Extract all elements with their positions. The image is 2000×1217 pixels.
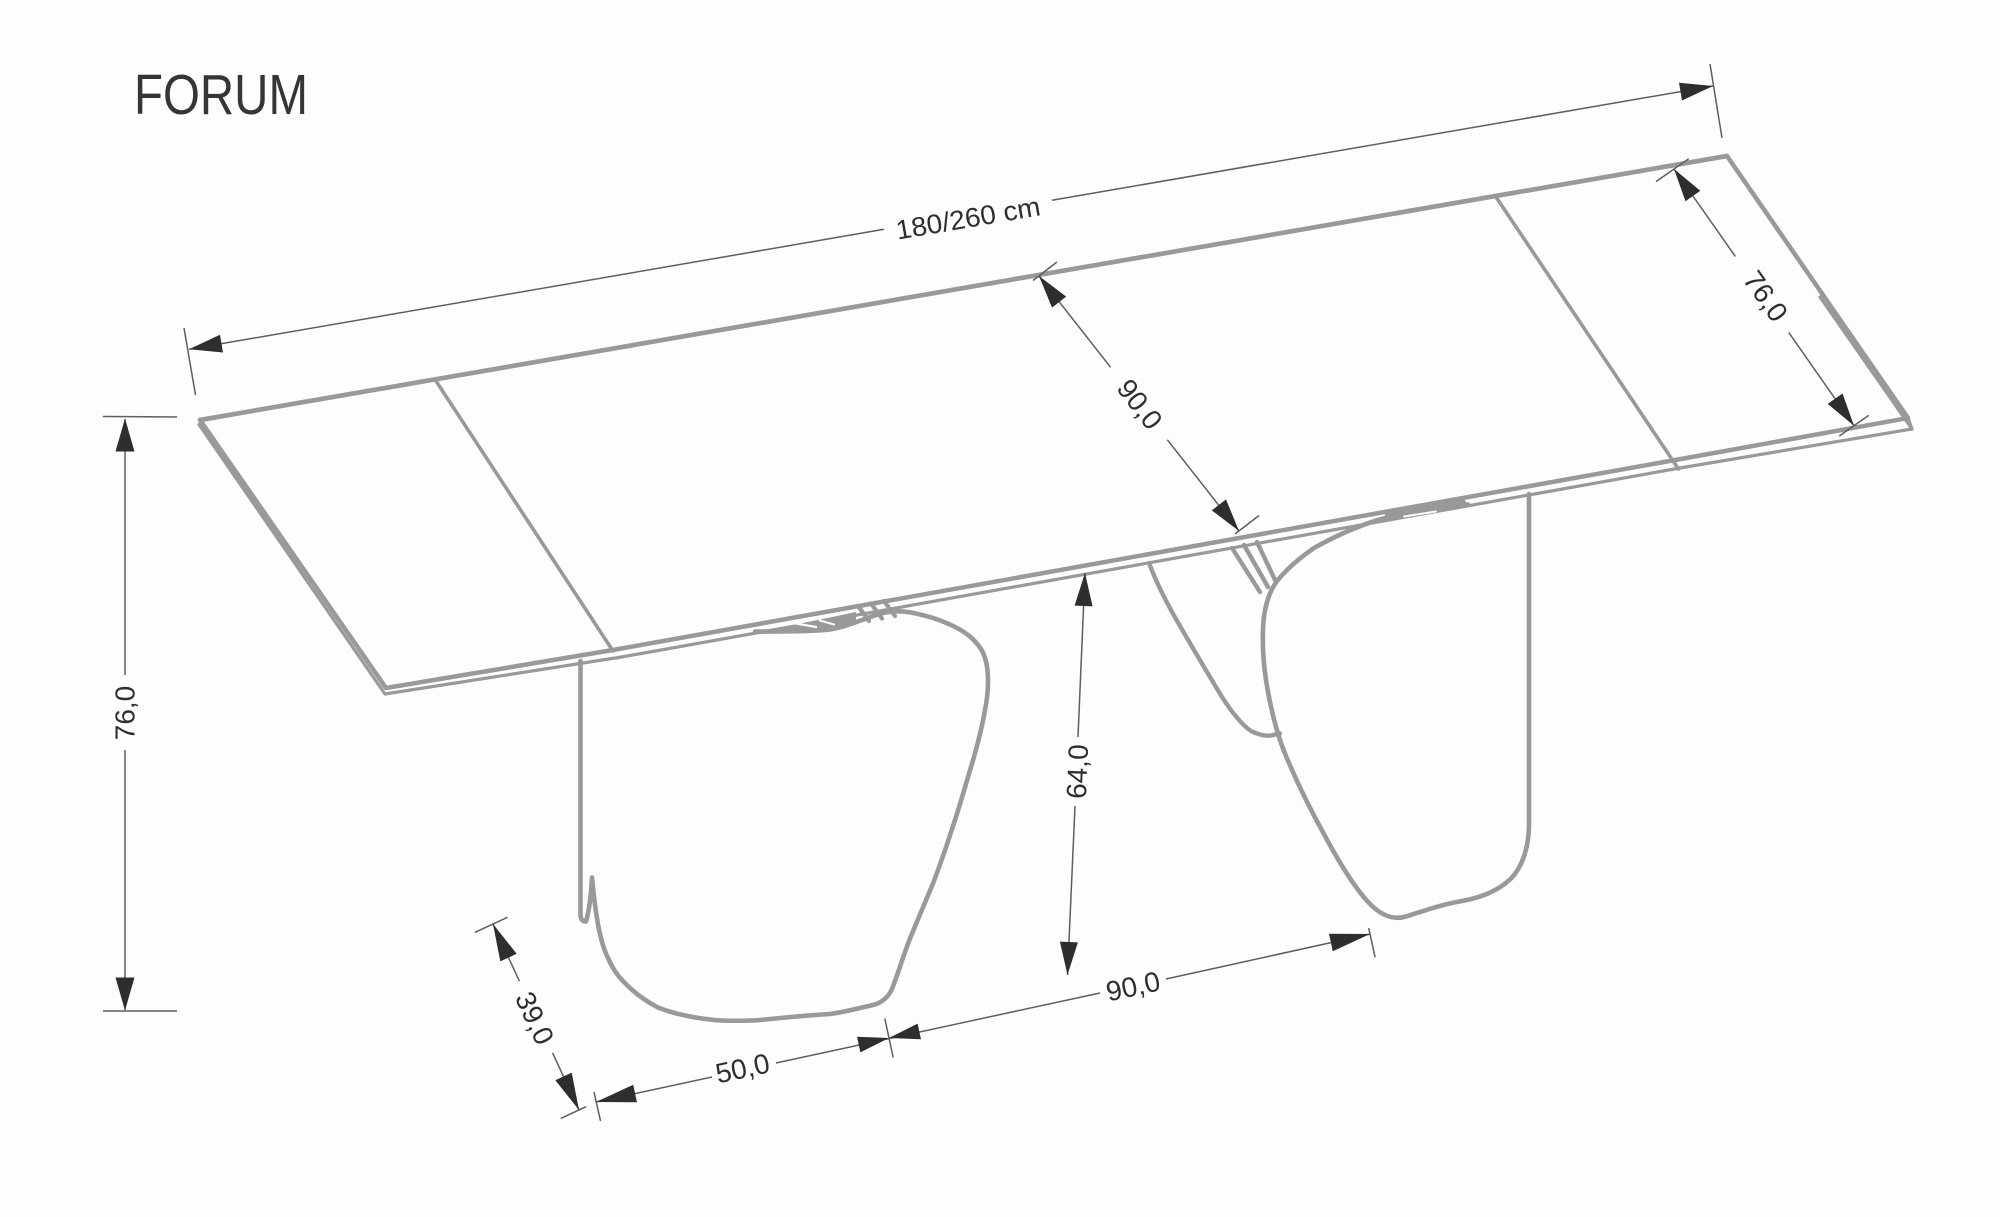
- svg-text:64,0: 64,0: [1061, 744, 1094, 800]
- svg-text:76,0: 76,0: [110, 686, 141, 741]
- svg-text:FORUM: FORUM: [134, 63, 308, 127]
